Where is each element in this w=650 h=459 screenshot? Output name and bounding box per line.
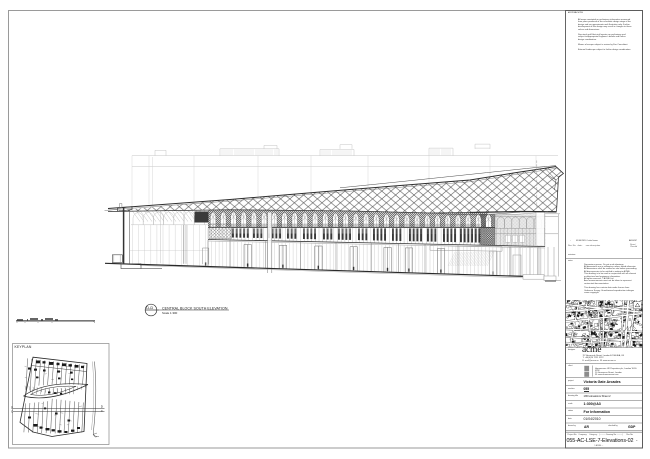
- svg-text:CENTRAL BLOCK SOUTH ELEVATION: CENTRAL BLOCK SOUTH ELEVATION: [162, 306, 228, 310]
- svg-text:C: C: [101, 409, 104, 413]
- svg-text:Scale 1:300: Scale 1:300: [162, 311, 178, 315]
- svg-text:D-D: D-D: [146, 305, 153, 310]
- svg-text:D: D: [101, 405, 104, 409]
